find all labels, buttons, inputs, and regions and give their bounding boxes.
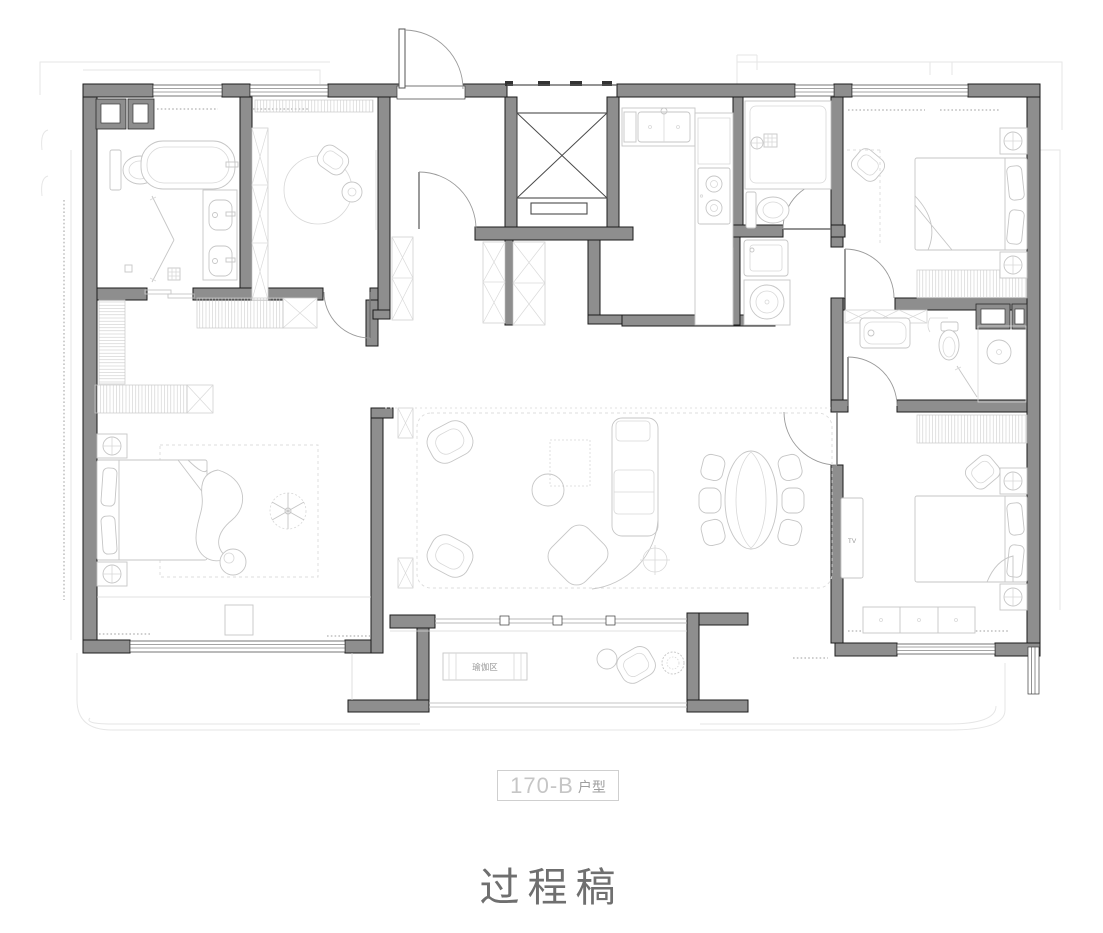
- counter-column: [695, 113, 733, 325]
- cabinet-x: [513, 242, 545, 325]
- room-living-dining: [385, 408, 832, 590]
- shelf: [225, 605, 253, 635]
- window-bottom-left: [130, 641, 345, 652]
- nightstand: [1000, 252, 1027, 278]
- wardrobe-master-left: [99, 300, 125, 384]
- bathtub: [141, 141, 238, 189]
- window-right-vertical: [1028, 647, 1039, 694]
- cabinet-x: [398, 408, 413, 438]
- window-top-2: [250, 85, 328, 96]
- nightstand: [97, 562, 127, 586]
- wardrobe-master-top: [197, 298, 283, 328]
- nightstand: [97, 434, 127, 458]
- lounge-chair: [597, 643, 659, 688]
- floor-drain: [168, 268, 180, 280]
- side-table: [532, 474, 564, 506]
- room-bedroom-master: [97, 434, 371, 635]
- chair: [314, 142, 352, 179]
- cabinet-x: [187, 385, 213, 413]
- chair: [848, 145, 888, 184]
- cabinet-x: [252, 128, 268, 300]
- window-bottom-right: [897, 644, 995, 654]
- balcony-glass-door: [435, 616, 687, 625]
- balcony-yoga: 瑜伽区: [352, 631, 687, 707]
- unit-number: 170-B: [510, 773, 574, 799]
- room-bedroom-topright: [845, 128, 1027, 278]
- room-kitchen: [622, 108, 733, 325]
- nightstand: [1000, 128, 1027, 154]
- window-top-4: [852, 85, 968, 96]
- draft-label: 过程稿: [0, 855, 1103, 913]
- tv-label: TV: [848, 538, 857, 545]
- cabinet-x: [398, 558, 413, 588]
- coffee-table: [550, 440, 590, 486]
- cabinet-x: [392, 237, 413, 320]
- shower-doors: [150, 196, 174, 282]
- side-table: [342, 182, 362, 202]
- toilet: [939, 322, 959, 360]
- window-top-1: [153, 85, 222, 96]
- wardrobe-dressing: [255, 100, 373, 112]
- dresser: [863, 607, 975, 633]
- drain-small: [125, 265, 132, 272]
- room-bathroom-topleft: [110, 141, 238, 282]
- tv-cabinet: TV: [841, 498, 863, 578]
- sofa: [543, 418, 658, 590]
- counter: [622, 108, 695, 146]
- nightstand: [1000, 584, 1027, 610]
- bedroom1-door: [845, 249, 894, 298]
- wardrobe-bedroom2: [917, 415, 1027, 443]
- dining-table: [725, 451, 777, 549]
- bed: [915, 496, 1027, 582]
- elevator-shaft: [517, 113, 607, 214]
- vanity-double-sink: [203, 190, 237, 280]
- unit-suffix: 户型: [578, 777, 606, 797]
- railing: [429, 703, 687, 707]
- bed: [97, 460, 207, 560]
- plant: [662, 652, 684, 674]
- room-bath-mid: [860, 318, 1026, 402]
- cabinet-x: [283, 298, 317, 328]
- floor-marker: [640, 545, 670, 575]
- armchair: [422, 530, 478, 582]
- room-laundry: [744, 240, 790, 325]
- window-top-3: [795, 85, 834, 96]
- room-bath-small: [745, 101, 831, 228]
- ceiling-fan: [270, 493, 306, 529]
- cabinet-x: [483, 242, 505, 323]
- entry-door: [397, 29, 465, 99]
- room-dressing: [284, 142, 376, 230]
- armchair: [422, 416, 478, 468]
- nightstand: [1000, 468, 1027, 494]
- shower: [745, 101, 831, 189]
- wardrobe-master-bottom: [95, 385, 187, 413]
- dressing-room-door: [324, 292, 370, 338]
- yoga-area-label: 瑜伽区: [472, 662, 498, 672]
- floorplan-page: TV: [0, 0, 1103, 933]
- lounge-chair: [962, 452, 1003, 493]
- elevator-door-sill: [531, 203, 587, 214]
- yoga-mat: 瑜伽区: [443, 653, 527, 680]
- unit-label-box: 170-B 户型: [497, 770, 619, 801]
- bed: [915, 158, 1027, 250]
- shower: [955, 326, 1026, 402]
- foyer-inner-door: [419, 172, 476, 229]
- laundry-sink: [744, 240, 788, 276]
- room-bedroom-bottomright: TV: [841, 452, 1027, 633]
- mid-bath-door: [848, 357, 897, 406]
- toilet: [746, 192, 789, 228]
- bathtub: [860, 318, 910, 348]
- master-bedroom-sliding-door: [145, 290, 194, 298]
- washing-machine: [744, 280, 790, 325]
